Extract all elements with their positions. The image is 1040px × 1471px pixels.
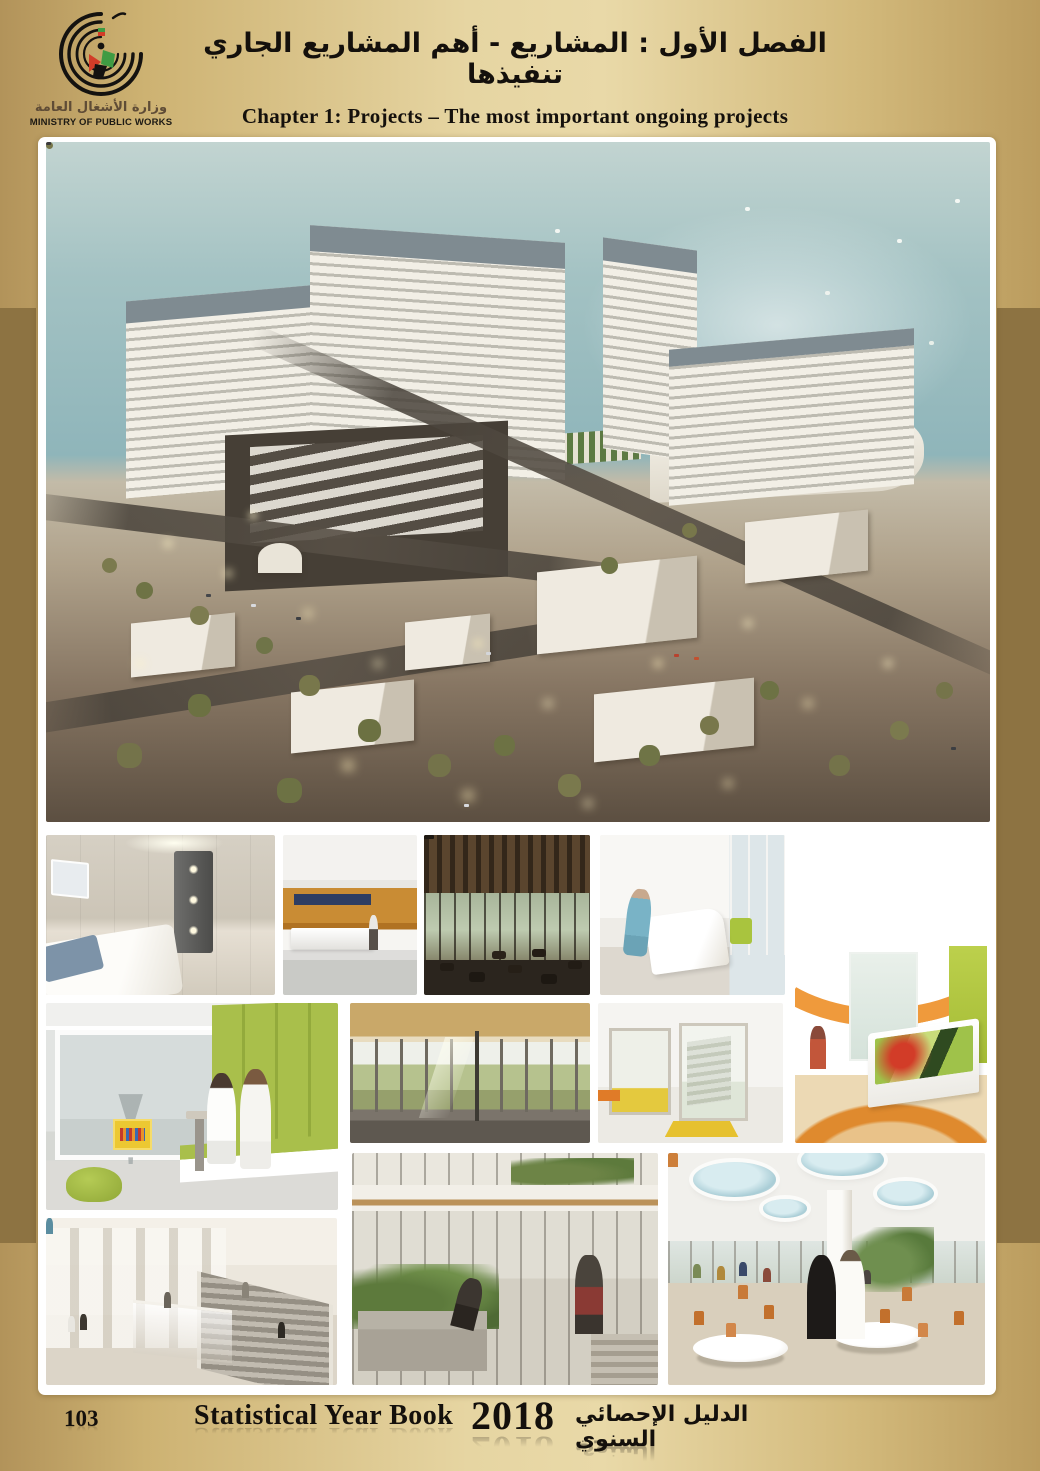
low-building bbox=[291, 680, 414, 754]
cars-dots bbox=[46, 142, 51, 145]
ministry-name-arabic: وزارة الأشغال العامة bbox=[26, 100, 176, 115]
chapter-title-english: Chapter 1: Projects – The most important… bbox=[170, 104, 860, 129]
photo-escalator-atrium bbox=[46, 1218, 337, 1385]
chapter-title-arabic: الفصل الأول : المشاريع - أهم المشاريع ال… bbox=[170, 28, 860, 90]
mosque-dome bbox=[258, 543, 302, 573]
stair-behind-glass bbox=[687, 1036, 731, 1107]
nurse bbox=[207, 1073, 236, 1164]
nurse bbox=[240, 1069, 271, 1168]
low-building bbox=[745, 510, 868, 584]
tables-silhouettes bbox=[424, 835, 434, 839]
book-title-arabic: الدليل الإحصائي السنوي bbox=[575, 1402, 815, 1452]
low-building bbox=[594, 678, 754, 763]
oval-skylight bbox=[877, 1181, 934, 1207]
lit-wall-panel bbox=[174, 851, 213, 953]
ministry-logo: وزارة الأشغال العامة MINISTRY OF PUBLIC … bbox=[26, 6, 176, 128]
photo-reception-lobby bbox=[283, 835, 417, 995]
photo-yellow-corridor bbox=[598, 1003, 783, 1143]
reception-desk bbox=[291, 928, 374, 949]
oval-skylight bbox=[801, 1153, 883, 1176]
photo-collage-panel bbox=[38, 137, 996, 1395]
glass-railing bbox=[133, 1300, 232, 1363]
orange-bench bbox=[598, 1090, 620, 1101]
people-dots bbox=[693, 1264, 701, 1278]
page-footer: 103 Statistical Year Book 2018 الدليل ال… bbox=[0, 1398, 1040, 1471]
green-ottoman bbox=[66, 1167, 121, 1202]
photo-staff-window-seat bbox=[46, 1003, 338, 1210]
person bbox=[369, 915, 378, 950]
photo-patient-room-nurse bbox=[600, 835, 785, 995]
yellow-floor-mat bbox=[665, 1121, 739, 1138]
oval-table bbox=[693, 1334, 788, 1362]
wood-beam-ceiling bbox=[424, 835, 590, 893]
glass-wall bbox=[424, 893, 590, 960]
green-chair bbox=[730, 918, 752, 944]
person-kandura bbox=[836, 1250, 865, 1338]
wall-sign bbox=[294, 894, 372, 905]
hospital-bed bbox=[644, 907, 729, 975]
ministry-name-english: MINISTRY OF PUBLIC WORKS bbox=[26, 117, 176, 128]
corner-mullion bbox=[475, 1031, 479, 1121]
low-building bbox=[131, 613, 235, 678]
photo-cafeteria bbox=[668, 1153, 985, 1385]
wall-tv bbox=[51, 859, 89, 899]
book-year: 2018 bbox=[471, 1392, 555, 1439]
glazing-mullions bbox=[350, 1039, 590, 1112]
walkway-bridge bbox=[352, 1185, 658, 1211]
photo-garden-courtyard bbox=[352, 1153, 658, 1385]
photo-glass-corridor bbox=[350, 1003, 590, 1143]
walking-person bbox=[575, 1255, 603, 1334]
table-leg bbox=[195, 1117, 204, 1171]
photo-patient-room bbox=[46, 835, 275, 995]
low-building bbox=[405, 614, 490, 671]
photo-childrens-reception bbox=[795, 835, 987, 1143]
oval-skylight bbox=[693, 1162, 775, 1197]
hospital-tower bbox=[669, 328, 914, 506]
yellow-artwork bbox=[113, 1119, 152, 1150]
flower-reception-desk bbox=[868, 1018, 979, 1108]
chapter-header: الفصل الأول : المشاريع - أهم المشاريع ال… bbox=[170, 28, 860, 129]
book-title: Statistical Year Book bbox=[194, 1400, 453, 1432]
photo-cafe-terrace bbox=[424, 835, 590, 995]
ministry-emblem-icon bbox=[53, 6, 149, 102]
right-gold-bar bbox=[997, 308, 1040, 1243]
person-abaya bbox=[807, 1255, 836, 1339]
stairs bbox=[591, 1334, 658, 1385]
left-gold-bar bbox=[0, 308, 36, 1243]
orange-chairs-dots bbox=[668, 1153, 678, 1167]
people-dots bbox=[46, 1218, 53, 1234]
yearbook-page: وزارة الأشغال العامة MINISTRY OF PUBLIC … bbox=[0, 0, 1040, 1471]
photo-aerial-campus-rendering bbox=[46, 142, 990, 822]
upper-greenery bbox=[511, 1158, 633, 1186]
oval-skylight bbox=[763, 1199, 807, 1218]
low-building bbox=[537, 555, 697, 653]
person bbox=[810, 1026, 825, 1069]
page-number: 103 bbox=[64, 1406, 99, 1432]
glass-office-front bbox=[609, 1028, 671, 1115]
